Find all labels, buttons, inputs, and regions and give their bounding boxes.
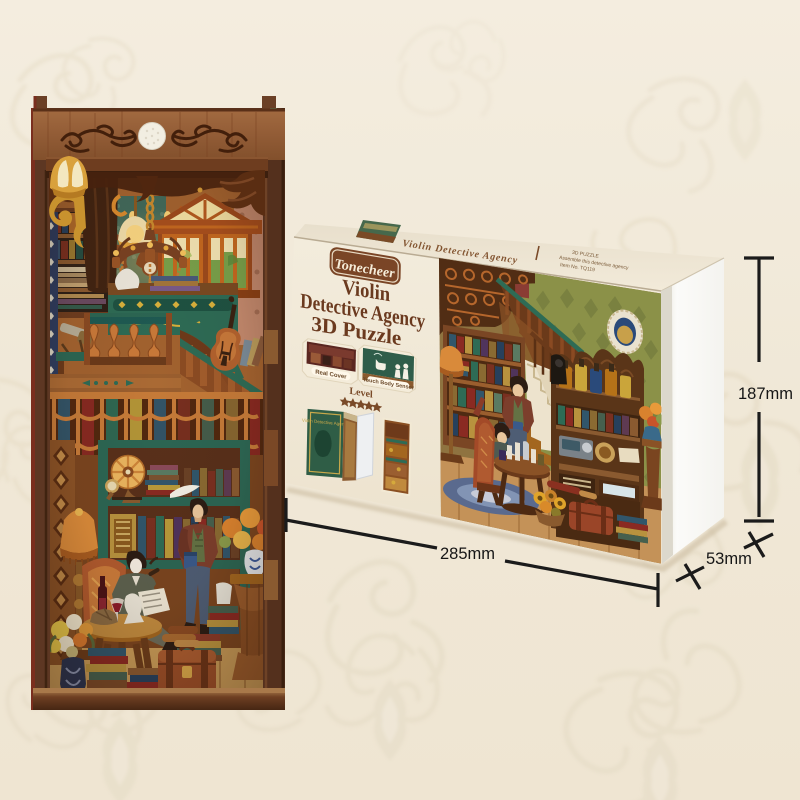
svg-text:187mm: 187mm: [738, 385, 793, 403]
svg-text:285mm: 285mm: [440, 545, 495, 563]
svg-text:53mm: 53mm: [706, 550, 752, 568]
